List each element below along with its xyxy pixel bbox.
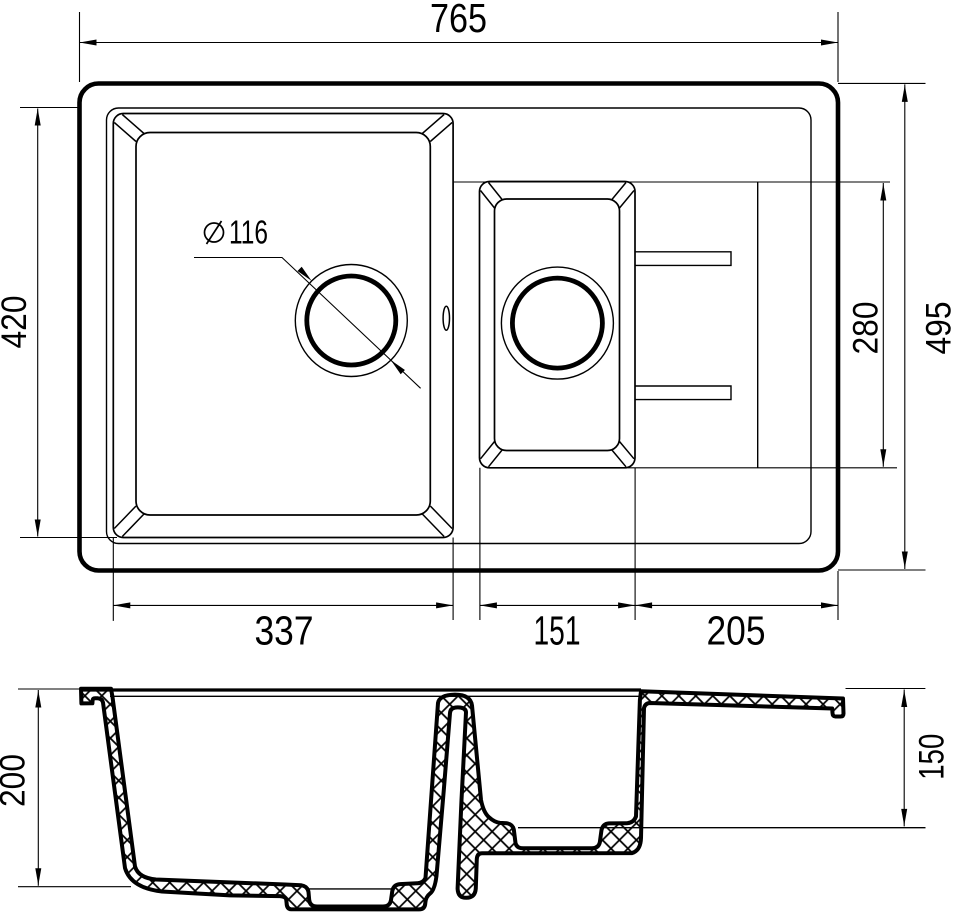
- svg-text:420: 420: [0, 296, 34, 349]
- svg-text:205: 205: [707, 608, 766, 654]
- svg-text:150: 150: [913, 734, 952, 780]
- svg-text:200: 200: [0, 754, 33, 807]
- svg-text:765: 765: [430, 0, 487, 41]
- svg-text:495: 495: [920, 302, 954, 355]
- svg-text:280: 280: [847, 302, 886, 355]
- svg-text:337: 337: [255, 608, 314, 654]
- svg-text:151: 151: [534, 608, 581, 654]
- svg-text:116: 116: [229, 214, 268, 251]
